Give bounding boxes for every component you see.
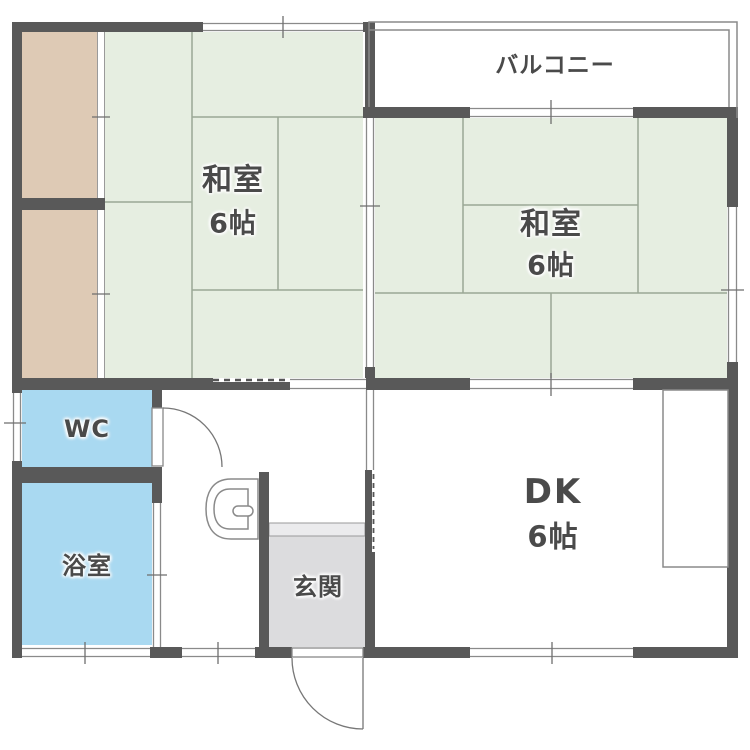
floorplan-drawing bbox=[0, 0, 750, 750]
toilet-icon bbox=[206, 479, 258, 539]
kitchen-counter bbox=[663, 390, 728, 567]
closet-lower bbox=[22, 210, 97, 378]
slider-hall-dk bbox=[365, 390, 375, 470]
wc-label: WC bbox=[64, 417, 110, 441]
floorplan-canvas: バルコニー 和室 6帖 和室 6帖 WC 浴室 玄関 DK 6帖 bbox=[0, 0, 750, 750]
genkan-step bbox=[269, 523, 365, 536]
window-bottom-bath bbox=[22, 642, 150, 664]
room-washitsu-left bbox=[105, 32, 363, 378]
bath-label: 浴室 bbox=[62, 554, 112, 578]
genkan-label: 玄関 bbox=[293, 575, 343, 599]
washitsu-right-size: 6帖 bbox=[527, 253, 575, 280]
washitsu-left-size: 6帖 bbox=[209, 211, 257, 238]
balcony-label: バルコニー bbox=[495, 55, 615, 78]
slider-washitsu-hall bbox=[290, 378, 366, 390]
wc-swing-door bbox=[152, 408, 222, 467]
entrance-swing-door bbox=[292, 647, 363, 729]
window-bottom-hall bbox=[182, 642, 255, 664]
washitsu-left-label: 和室 bbox=[202, 166, 264, 196]
washitsu-right-label: 和室 bbox=[520, 210, 582, 240]
dk-label: DK bbox=[524, 475, 583, 509]
dk-size: 6帖 bbox=[527, 523, 578, 552]
closet-upper bbox=[22, 32, 97, 198]
window-bottom-dk bbox=[470, 642, 633, 664]
